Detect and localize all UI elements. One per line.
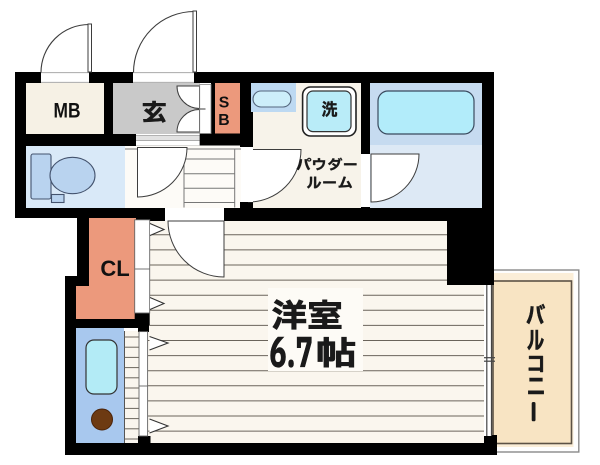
- svg-text:S: S: [219, 94, 230, 111]
- svg-text:CL: CL: [100, 256, 129, 281]
- svg-text:B: B: [218, 112, 229, 129]
- svg-text:MB: MB: [54, 99, 81, 122]
